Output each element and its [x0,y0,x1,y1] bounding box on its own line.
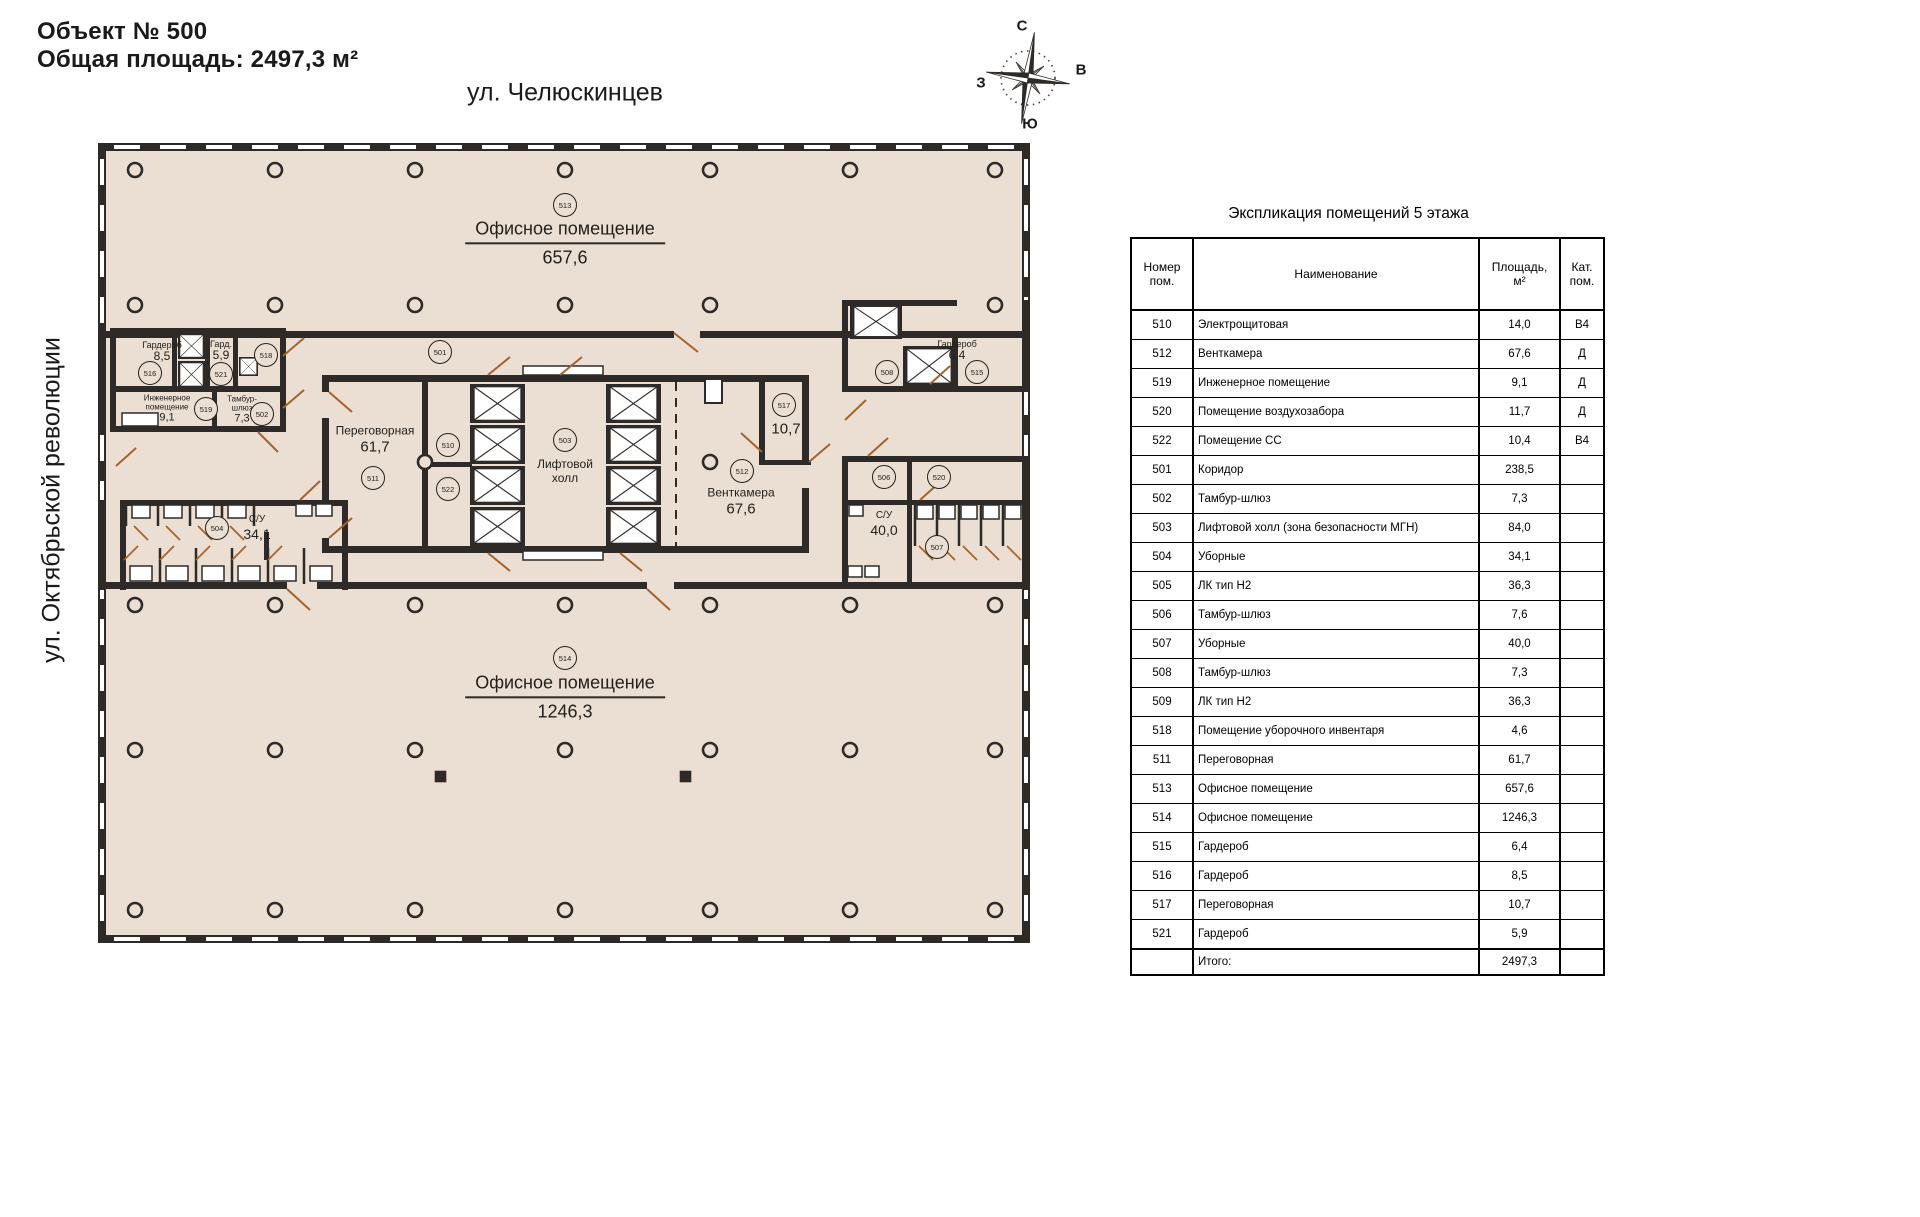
cell-area: 7,3 [1479,659,1560,688]
table-row: 512Венткамера67,6Д [1131,340,1604,369]
cell-name: Офисное помещение [1193,804,1479,833]
cell-num: 516 [1131,862,1193,891]
table-row: 513Офисное помещение657,6 [1131,775,1604,804]
explication-section: Экспликация помещений 5 этажа Номер пом.… [1130,205,1567,976]
table-row: 510Электрощитовая14,0В4 [1131,310,1604,340]
table-row: 521Гардероб5,9 [1131,920,1604,950]
cell-cat [1560,659,1604,688]
cell-name: Гардероб [1193,920,1479,950]
cell-cat: Д [1560,398,1604,427]
total-row: Итого: 2497,3 [1131,949,1604,975]
floor-plan-page: Объект № 500 Общая площадь: 2497,3 м² ул… [0,0,1920,1217]
cell-cat [1560,717,1604,746]
cell-area: 10,7 [1479,891,1560,920]
cell-area: 34,1 [1479,543,1560,572]
col-header-number: Номер пом. [1131,238,1193,310]
cell-area: 40,0 [1479,630,1560,659]
total-cat-cell [1560,949,1604,975]
cell-cat [1560,601,1604,630]
table-header-row: Номер пом. Наименование Площадь, м² Кат.… [1131,238,1604,310]
cell-name: Коридор [1193,456,1479,485]
table-row: 503Лифтовой холл (зона безопасности МГН)… [1131,514,1604,543]
cell-num: 504 [1131,543,1193,572]
cell-area: 61,7 [1479,746,1560,775]
cell-area: 11,7 [1479,398,1560,427]
table-row: 515Гардероб6,4 [1131,833,1604,862]
cell-num: 517 [1131,891,1193,920]
table-row: 517Переговорная10,7 [1131,891,1604,920]
col-header-category: Кат. пом. [1560,238,1604,310]
cell-num: 514 [1131,804,1193,833]
table-row: 516Гардероб8,5 [1131,862,1604,891]
table-row: 507Уборные40,0 [1131,630,1604,659]
cell-name: Переговорная [1193,746,1479,775]
cell-name: ЛК тип Н2 [1193,572,1479,601]
table-row: 522Помещение СС10,4В4 [1131,427,1604,456]
cell-cat: Д [1560,340,1604,369]
table-row: 502Тамбур-шлюз7,3 [1131,485,1604,514]
table-row: 506Тамбур-шлюз7,6 [1131,601,1604,630]
table-row: 514Офисное помещение1246,3 [1131,804,1604,833]
cell-num: 513 [1131,775,1193,804]
table-row: 520Помещение воздухозабора11,7Д [1131,398,1604,427]
cell-num: 510 [1131,310,1193,340]
cell-name: Венткамера [1193,340,1479,369]
cell-num: 503 [1131,514,1193,543]
col-header-area: Площадь, м² [1479,238,1560,310]
table-title: Экспликация помещений 5 этажа [1130,205,1567,223]
cell-num: 520 [1131,398,1193,427]
cell-num: 502 [1131,485,1193,514]
cell-cat [1560,775,1604,804]
cell-name: Гардероб [1193,833,1479,862]
cell-area: 36,3 [1479,572,1560,601]
col-header-name: Наименование [1193,238,1479,310]
cell-cat [1560,543,1604,572]
cell-cat [1560,891,1604,920]
cell-name: Инженерное помещение [1193,369,1479,398]
cell-name: Тамбур-шлюз [1193,601,1479,630]
cell-cat [1560,804,1604,833]
cell-cat: В4 [1560,310,1604,340]
cell-cat [1560,920,1604,950]
room-table-body: 510Электрощитовая14,0В4512Венткамера67,6… [1131,310,1604,949]
cell-num: 508 [1131,659,1193,688]
cell-num: 512 [1131,340,1193,369]
cell-area: 1246,3 [1479,804,1560,833]
cell-name: Уборные [1193,543,1479,572]
cell-area: 7,6 [1479,601,1560,630]
cell-name: Помещение воздухозабора [1193,398,1479,427]
cell-name: Уборные [1193,630,1479,659]
cell-num: 509 [1131,688,1193,717]
cell-name: Лифтовой холл (зона безопасности МГН) [1193,514,1479,543]
cell-name: Офисное помещение [1193,775,1479,804]
cell-cat [1560,630,1604,659]
cell-area: 4,6 [1479,717,1560,746]
cell-num: 501 [1131,456,1193,485]
room-table-foot: Итого: 2497,3 [1131,949,1604,975]
cell-name: Помещение СС [1193,427,1479,456]
cell-num: 515 [1131,833,1193,862]
building-floor [102,147,1026,939]
cell-name: Тамбур-шлюз [1193,485,1479,514]
total-label: Итого: [1193,949,1479,975]
cell-area: 657,6 [1479,775,1560,804]
cell-num: 519 [1131,369,1193,398]
cell-num: 506 [1131,601,1193,630]
table-row: 508Тамбур-шлюз7,3 [1131,659,1604,688]
cell-area: 36,3 [1479,688,1560,717]
table-row: 519Инженерное помещение9,1Д [1131,369,1604,398]
total-empty-cell [1131,949,1193,975]
cell-name: Гардероб [1193,862,1479,891]
room-table-head: Номер пом. Наименование Площадь, м² Кат.… [1131,238,1604,310]
table-row: 511Переговорная61,7 [1131,746,1604,775]
cell-cat: Д [1560,369,1604,398]
table-row: 518Помещение уборочного инвентаря4,6 [1131,717,1604,746]
cell-area: 8,5 [1479,862,1560,891]
cell-num: 522 [1131,427,1193,456]
cell-cat: В4 [1560,427,1604,456]
cell-area: 9,1 [1479,369,1560,398]
cell-area: 10,4 [1479,427,1560,456]
cell-area: 67,6 [1479,340,1560,369]
cell-num: 518 [1131,717,1193,746]
cell-area: 7,3 [1479,485,1560,514]
cell-cat [1560,862,1604,891]
floor-plan-drawing [0,0,1920,1217]
cell-cat [1560,456,1604,485]
cell-area: 238,5 [1479,456,1560,485]
cell-name: ЛК тип Н2 [1193,688,1479,717]
cell-cat [1560,746,1604,775]
table-row: 505ЛК тип Н236,3 [1131,572,1604,601]
cell-area: 6,4 [1479,833,1560,862]
cell-area: 14,0 [1479,310,1560,340]
cell-num: 507 [1131,630,1193,659]
table-row: 509ЛК тип Н236,3 [1131,688,1604,717]
cell-num: 511 [1131,746,1193,775]
cell-name: Электрощитовая [1193,310,1479,340]
total-area-value: 2497,3 [1479,949,1560,975]
cell-name: Тамбур-шлюз [1193,659,1479,688]
cell-cat [1560,833,1604,862]
cell-cat [1560,572,1604,601]
cell-area: 84,0 [1479,514,1560,543]
table-row: 501Коридор238,5 [1131,456,1604,485]
cell-num: 521 [1131,920,1193,950]
cell-num: 505 [1131,572,1193,601]
cell-cat [1560,688,1604,717]
cell-name: Переговорная [1193,891,1479,920]
cell-area: 5,9 [1479,920,1560,950]
room-table: Номер пом. Наименование Площадь, м² Кат.… [1130,237,1605,976]
table-row: 504Уборные34,1 [1131,543,1604,572]
cell-name: Помещение уборочного инвентаря [1193,717,1479,746]
cell-cat [1560,485,1604,514]
cell-cat [1560,514,1604,543]
